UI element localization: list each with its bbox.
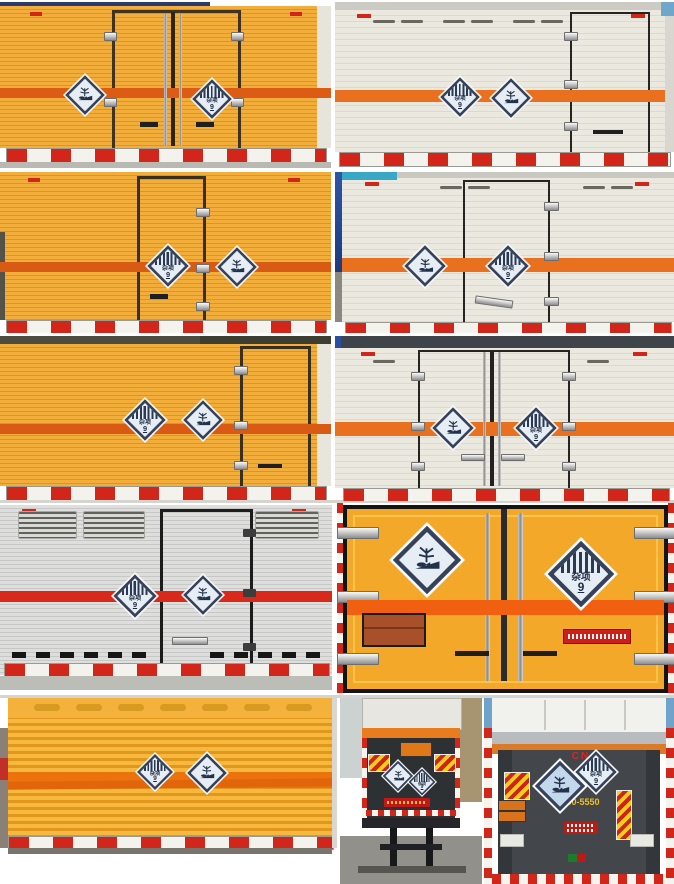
hinge: [564, 80, 578, 89]
vent-slot: [587, 360, 609, 363]
lift-handle-green: [568, 854, 577, 862]
env-hazard-placard-icon: [215, 245, 259, 289]
blue-truck-sliver: [335, 172, 342, 272]
hinge: [411, 372, 425, 381]
background-truck-sliver: [317, 344, 331, 486]
rail-slot: [34, 704, 60, 711]
hinge: [104, 32, 117, 41]
vent-slot: [471, 20, 493, 23]
photo-r1-left: 杂项9: [0, 2, 331, 168]
rail-slot: [286, 704, 312, 711]
hinge: [544, 297, 559, 306]
lock-rod: [498, 352, 501, 486]
reflector: [357, 14, 371, 18]
rear-bumper: [343, 488, 670, 501]
chevron-plate: [434, 754, 456, 772]
stripe: [0, 591, 332, 602]
door-latch: [140, 122, 158, 127]
hinge: [243, 529, 256, 537]
red-banner: [384, 798, 430, 807]
class9-placard-icon: 杂项9: [407, 767, 437, 797]
louver-vent: [83, 511, 145, 539]
door-latch: [455, 651, 489, 656]
hinge: [634, 653, 674, 665]
rail-slot: [118, 704, 144, 711]
shadow: [0, 676, 332, 690]
door-latch: [461, 454, 485, 461]
axle-bar: [380, 844, 442, 850]
reflector: [635, 182, 649, 186]
class9-placard-icon: 杂项9: [513, 405, 559, 451]
cargo-door: [240, 346, 311, 492]
class9-placard-icon: 杂项9: [544, 537, 618, 611]
env-hazard-placard-icon: [181, 573, 225, 617]
reflector: [290, 12, 302, 16]
vent-slot: [440, 186, 462, 189]
door-split: [171, 12, 175, 146]
warning-plate-line: [364, 627, 424, 629]
background-sliver: [332, 698, 337, 848]
class9-placard-icon: 杂项9: [190, 77, 234, 121]
class9-placard-icon: 杂项9: [111, 572, 159, 620]
louver-vent: [18, 511, 77, 539]
door-latch: [593, 130, 623, 134]
white-plate: [500, 834, 524, 847]
class9-placard-icon: 杂项9: [145, 243, 191, 289]
class9-placard-icon: 杂项9: [135, 752, 175, 792]
hinge: [634, 527, 674, 539]
rail-slot: [202, 704, 228, 711]
hinge: [196, 264, 210, 273]
rail-slot: [244, 704, 270, 711]
door-latch: [196, 122, 214, 127]
chevron-plate: [616, 790, 632, 840]
class9-placard-icon: 杂项9: [122, 397, 168, 443]
reflector: [361, 352, 375, 356]
truck-photo-collage: 杂项9 杂项9 杂项9: [0, 0, 674, 884]
truck-box: [362, 698, 462, 730]
hinge: [196, 302, 210, 311]
photo-r3-right: 杂项9: [335, 336, 674, 501]
lock-rod: [164, 14, 167, 146]
env-hazard-placard-icon: [489, 76, 533, 120]
background-truck-sliver: [317, 6, 331, 148]
shadow: [358, 866, 466, 873]
door-latch: [501, 454, 525, 461]
hinge: [337, 653, 379, 665]
orange-plate: [400, 742, 432, 757]
truck-box-door: [492, 698, 666, 734]
checker-band: [492, 732, 666, 744]
lift-rail: [646, 750, 660, 876]
hinge: [564, 122, 578, 131]
background-sliver: [0, 728, 8, 848]
underride-dashes: [210, 652, 320, 658]
photo-r3-left: 杂项9: [0, 336, 331, 500]
reflective-bumper: [492, 874, 666, 884]
underride-dashes: [12, 652, 150, 658]
photo-r5-right: CN -990-5550 杂项9: [484, 698, 674, 884]
door-handle: [172, 637, 208, 645]
rear-bumper: [6, 320, 327, 333]
hinge: [234, 421, 248, 430]
vent-slot: [373, 360, 395, 363]
door-seam: [544, 700, 546, 730]
env-hazard-placard-icon: [430, 405, 476, 451]
reflective-strip: [362, 738, 367, 820]
louver-vent: [255, 511, 319, 539]
reflector: [288, 178, 300, 182]
photo-r2-right: 杂项9: [335, 172, 674, 333]
rear-bumper: [339, 152, 671, 167]
hinge: [564, 32, 578, 41]
hinge: [544, 202, 559, 211]
hinge: [562, 372, 576, 381]
hinge: [234, 366, 248, 375]
white-plate: [630, 834, 654, 847]
door-latch: [150, 294, 168, 299]
reflector: [365, 182, 379, 186]
rear-bumper: [6, 486, 327, 500]
photo-r5-left: 杂项9: [0, 698, 337, 860]
hinge: [411, 462, 425, 471]
hinge: [196, 208, 210, 217]
background-red-truck: [0, 758, 8, 780]
photo-r5-middle: 杂项9: [340, 698, 482, 884]
env-hazard-placard-icon: [63, 73, 107, 117]
hinge: [544, 252, 559, 261]
class9-placard-icon: 杂项9: [573, 749, 619, 795]
company-name-plate: [563, 629, 631, 644]
chevron-plate: [504, 772, 530, 800]
warning-plate: [362, 613, 426, 647]
lift-handle-red: [577, 854, 586, 862]
lock-rod: [483, 352, 486, 486]
vent-slot: [401, 20, 423, 23]
hinge: [337, 527, 379, 539]
class9-placard-icon: 杂项9: [485, 243, 531, 289]
vent-slot: [541, 20, 563, 23]
sky-corner: [661, 2, 674, 16]
reflective-strip: [666, 728, 674, 884]
photo-r4-right: 杂项9: [337, 503, 674, 695]
photo-r2-left: 杂项9: [0, 172, 331, 333]
reflector: [30, 12, 42, 16]
stripe: [335, 422, 674, 436]
cargo-door: [570, 12, 650, 156]
orange-plate: [498, 811, 526, 822]
reflector: [28, 178, 40, 182]
background-strip: [335, 2, 674, 10]
rail-slot: [76, 704, 102, 711]
hinge: [234, 461, 248, 470]
rear-bumper: [345, 322, 672, 333]
shadow: [8, 848, 332, 854]
door-latch: [523, 651, 557, 656]
photo-r4-left: 杂项9: [0, 503, 332, 695]
reflective-dash-strip: [366, 810, 456, 816]
lock-rod: [179, 14, 182, 146]
hinge: [231, 32, 244, 41]
rail-slot: [160, 704, 186, 711]
vent-slot: [611, 186, 633, 189]
env-hazard-placard-icon: [181, 398, 225, 442]
class9-placard-icon: 杂项9: [438, 75, 482, 119]
door-split: [490, 352, 494, 486]
reflector: [633, 352, 647, 356]
hinge: [243, 643, 256, 651]
treeline-strip: [335, 336, 674, 348]
hinge: [562, 422, 576, 431]
door-seam: [624, 700, 626, 730]
red-text-plate: [564, 822, 598, 834]
door-latch: [258, 464, 282, 468]
reflective-strip: [455, 738, 460, 820]
edge-shadow: [335, 272, 342, 322]
hinge: [243, 589, 256, 597]
door-split: [501, 509, 507, 681]
orange-plate: [498, 800, 526, 811]
chassis-bumper: [362, 818, 460, 828]
background-truck-sliver: [665, 16, 674, 152]
vent-slot: [583, 186, 605, 189]
vent-slot: [373, 20, 395, 23]
reflective-strip: [484, 728, 492, 884]
hinge: [562, 462, 576, 471]
vent-slot: [443, 20, 465, 23]
photo-r1-right: 杂项9: [335, 2, 674, 168]
sky-sliver: [342, 172, 397, 180]
door-seam: [584, 700, 586, 730]
vent-slot: [513, 20, 535, 23]
shadow: [0, 162, 331, 168]
env-hazard-placard-icon: [402, 243, 448, 289]
hinge: [411, 422, 425, 431]
env-hazard-placard-icon: [185, 751, 229, 795]
env-hazard-placard-icon: [389, 522, 465, 598]
edge-shadow: [0, 232, 5, 320]
stripe: [362, 728, 460, 738]
